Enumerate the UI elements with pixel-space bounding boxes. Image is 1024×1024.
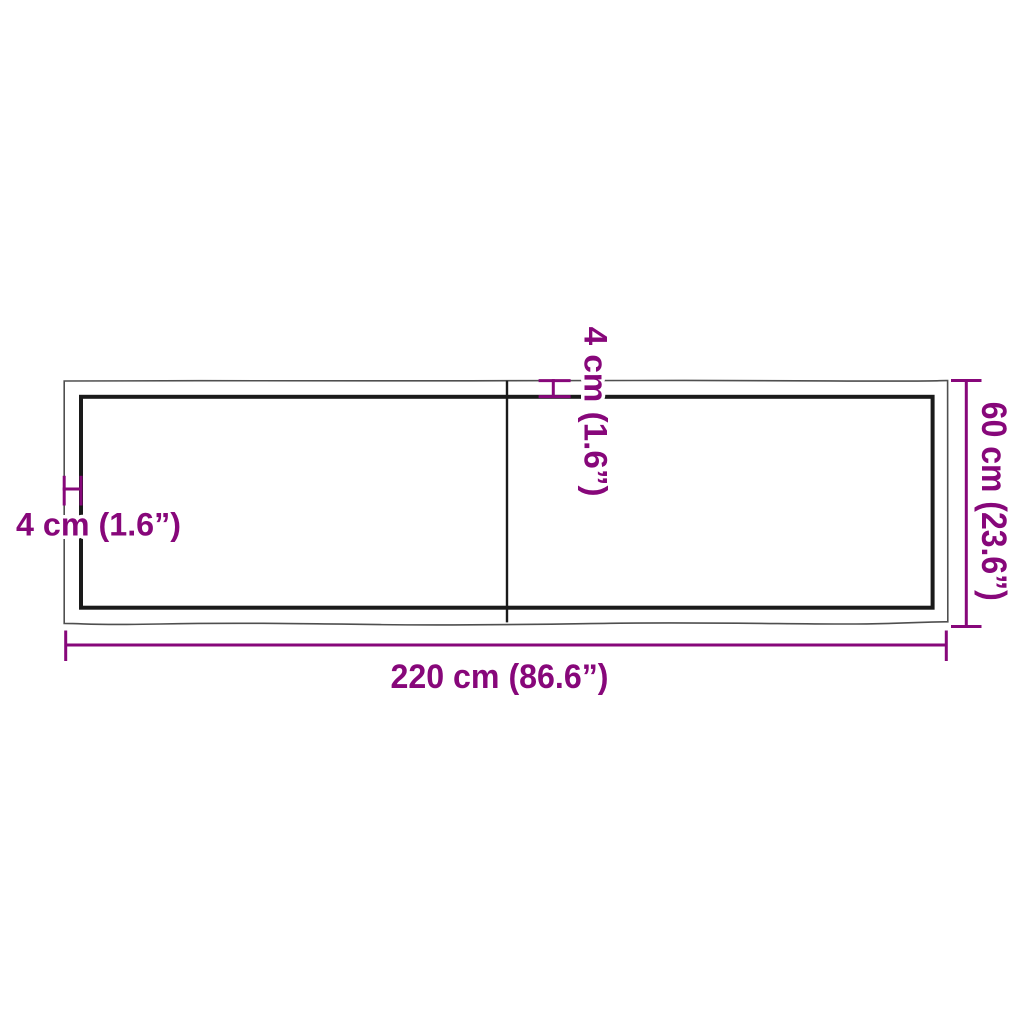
- svg-text:60 cm (23.6”): 60 cm (23.6”): [974, 402, 1013, 601]
- svg-text:4 cm (1.6”): 4 cm (1.6”): [16, 507, 181, 543]
- svg-text:220 cm (86.6”): 220 cm (86.6”): [391, 658, 609, 696]
- svg-text:4 cm (1.6”): 4 cm (1.6”): [578, 327, 614, 497]
